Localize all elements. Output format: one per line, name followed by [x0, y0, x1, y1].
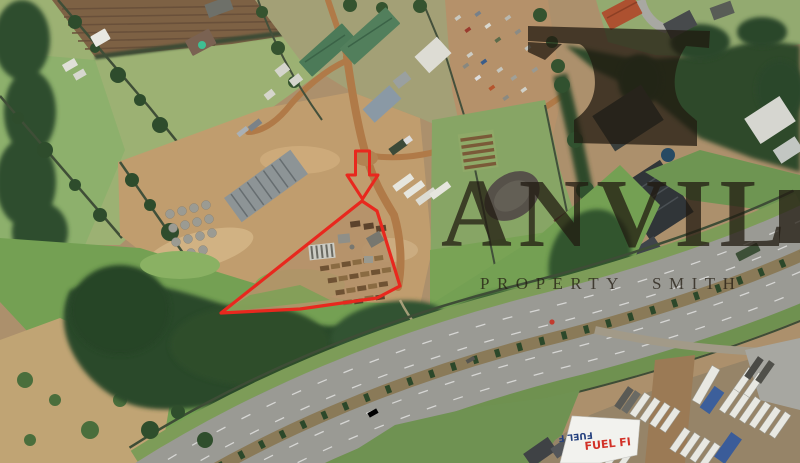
- swimming-pool: [198, 41, 206, 49]
- watermark-fragment: [779, 190, 800, 243]
- fuel-building: FUEL FI FUEL F: [558, 416, 640, 463]
- aerial-photo: FUEL FI FUEL F: [0, 0, 800, 463]
- aerial-photo-canvas: FUEL FI FUEL F: [0, 0, 800, 463]
- striped-shed: [308, 243, 335, 261]
- brand-tagline: PROPERTY SMITH: [480, 274, 742, 293]
- brand-wordmark: ANVIL: [441, 160, 792, 268]
